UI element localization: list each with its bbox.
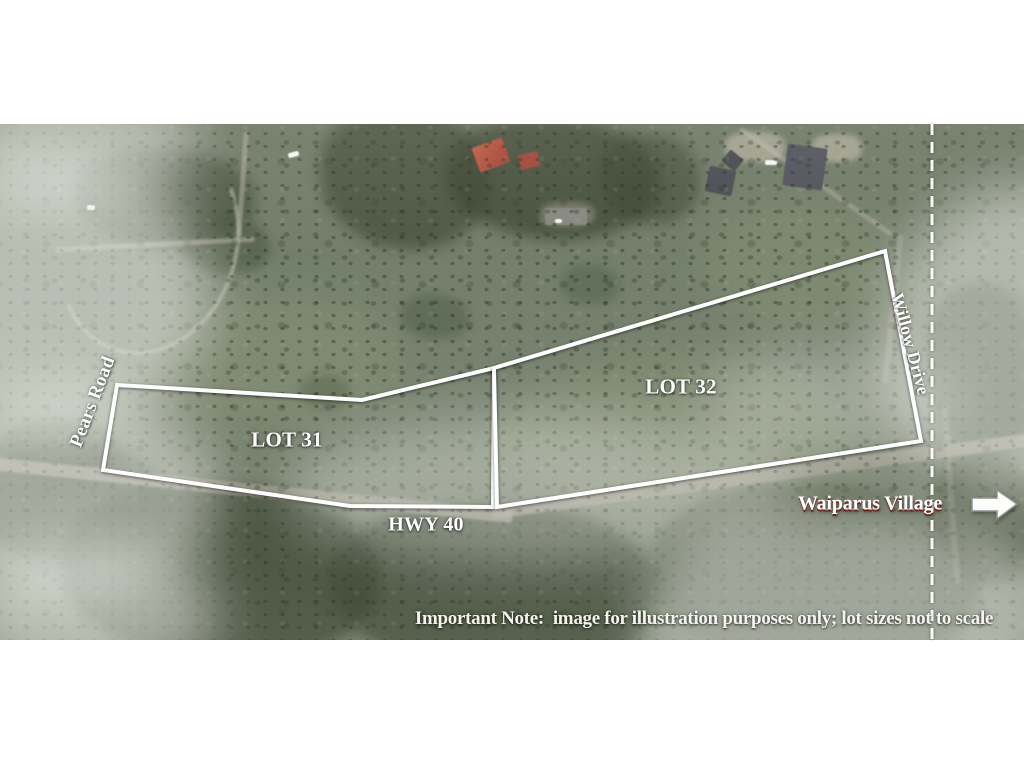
right-arrow-icon — [972, 490, 1017, 519]
map-overlay — [0, 0, 1024, 768]
disclaimer-note: Important Note: image for illustration p… — [415, 608, 993, 630]
lot-32-label: LOT 32 — [645, 375, 716, 400]
lot-map-image: Pears Road Willow Drive LOT 31 LOT 32 HW… — [0, 0, 1024, 768]
lot-31-label: LOT 31 — [251, 428, 322, 453]
hwy-40-label: HWY 40 — [388, 514, 463, 537]
waiparus-village-label: Waiparus Village — [798, 493, 942, 516]
